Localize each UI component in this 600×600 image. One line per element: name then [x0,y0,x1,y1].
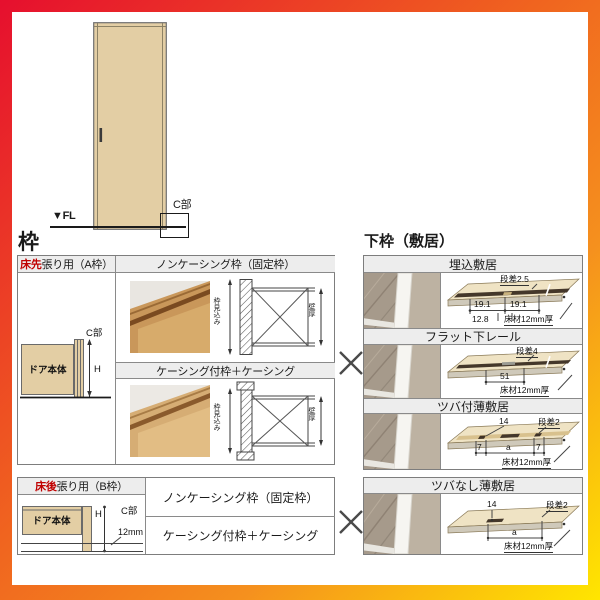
floor-level-label: ▼FL [52,210,75,222]
door-body-label: ドア本体 [28,364,67,376]
sill-row1-diagram: 段差2.5 19.1 19.1 12.8 床材12mm厚 [442,273,582,328]
table-b-header: 床後張り用（B枠） [18,478,146,495]
center-dim-label: a [506,443,511,452]
flooring-dim-label: 床材12mm厚 [500,386,549,397]
table-a-row2-cell: 枠見込み 壁厚 [116,379,335,464]
top-dim-label: 14 [499,417,508,426]
table-a-row1-title: ノンケーシング枠（固定枠） [156,256,295,272]
flooring-dim-label: 床材12mm厚 [502,458,551,469]
sill-row1-title: 埋込敷居 [449,256,497,273]
step-dim-label: 段差2 [538,418,560,429]
sill-photo [364,494,441,554]
casing-frame-photo [130,385,210,457]
floor-thickness-dim-label: 12mm [118,527,143,537]
table-a-header-red: 床先 [20,259,41,271]
frame-depth-label: 枠見込み [213,403,220,431]
sill-row3-header: ツバ付薄敷居 [364,398,582,414]
table-b-header-rest: 張り用（B枠） [57,481,128,493]
casing-frame-section-diagram [220,381,332,461]
sill-table-b: ツバなし薄敷居 [363,477,583,555]
table-b: 床後張り用（B枠） ドア本体 H C部 12mm ノンケーシング枠（固定枠） ケ [17,477,335,555]
h-dim-label: H [94,364,101,375]
sill-photo [364,345,441,398]
table-a-row1-header: ノンケーシング枠（固定枠） [116,256,335,273]
sill-row3-diagram: 14 段差2 7 a 7 床材12mm厚 [442,414,582,469]
sill-row4-title: ツバなし薄敷居 [431,477,515,494]
catalog-page: ▼FL C部 枠 下枠（敷居） 床先張り用（A枠） ドア本体 C部 H [0,0,600,600]
frame-depth-label: 枠見込み [213,297,220,325]
top-dim-label: 14 [487,500,496,509]
center-dim-label: a [512,528,517,537]
wall-thickness-label: 壁厚 [308,303,315,317]
step-dim-label: 段差2.5 [500,275,529,286]
flooring-dim-label: 床材12mm厚 [504,542,553,553]
lower-frame-heading: 下枠（敷居） [364,230,454,251]
step-dim-label: 段差2 [546,501,568,512]
sill-row2-header: フラット下レール [364,328,582,345]
table-b-row2: ケーシング付枠＋ケーシング [146,517,335,554]
h-dim-label: H [95,509,102,520]
table-b-header-red: 床後 [35,481,56,493]
sill-row4-content: 14 段差2 a 床材12mm厚 [364,494,582,554]
frame-heading: 枠 [18,226,39,256]
sill-row3-title: ツバ付薄敷居 [437,398,509,415]
sill-row4-diagram: 14 段差2 a 床材12mm厚 [442,494,582,554]
table-a-row1-cell: 枠見込み 壁厚 [116,273,335,362]
table-b-row1: ノンケーシング枠（固定枠） [146,478,335,517]
cross-pairing-icon-top [336,348,366,378]
wall-thickness-label: 壁厚 [308,407,315,421]
sill-row1-content: 段差2.5 19.1 19.1 12.8 床材12mm厚 [364,273,582,328]
table-b-row1-title: ノンケーシング枠（固定枠） [163,489,319,506]
sill-row2-diagram: 段差4 51 床材12mm厚 [442,345,582,398]
sill-photo [364,273,441,328]
sill-row3-content: 14 段差2 7 a 7 床材12mm厚 [364,414,582,469]
table-b-row2-title: ケーシング付枠＋ケーシング [163,527,319,544]
frame-b-section-diagram: ドア本体 H C部 12mm [18,495,146,554]
right-dim-label: 19.1 [510,300,527,309]
step-dim-label: 段差4 [516,347,538,358]
door-body-label: ドア本体 [32,515,71,527]
table-a-header-rest: 張り用（A枠） [42,259,113,271]
frame-a-section-diagram: ドア本体 C部 H [18,273,116,464]
sill-row1-header: 埋込敷居 [364,256,582,273]
door-handle-icon [100,128,103,142]
c-dim-label: C部 [121,505,137,517]
center-dim-label: 12.8 [472,315,489,324]
sill-photo [364,414,441,469]
table-a-diagram-cell: ドア本体 C部 H [18,273,116,464]
sill-row4-header: ツバなし薄敷居 [364,478,582,494]
c-dim-label: C部 [86,327,102,339]
table-a: 床先張り用（A枠） ドア本体 C部 H ノンケーシング枠（固定枠） [17,255,335,465]
center-dim-label: 51 [500,372,509,381]
table-a-header: 床先張り用（A枠） [18,256,116,273]
noncasing-frame-section-diagram [220,277,332,357]
table-a-row2-header: ケーシング付枠＋ケーシング [116,362,335,379]
flooring-dim-label: 床材12mm厚 [504,315,553,326]
sill-row2-title: フラット下レール [425,328,521,345]
cross-pairing-icon-bottom [336,507,366,537]
table-b-diagram-cell: ドア本体 H C部 12mm [18,495,146,554]
table-a-row2-title: ケーシング付枠＋ケーシング [156,363,295,379]
noncasing-frame-photo [130,281,210,353]
c-section-callout-box [160,213,189,238]
right-dim-label: 7 [536,443,541,452]
left-dim-label: 7 [477,443,482,452]
door-elevation-figure [93,22,167,230]
left-dim-label: 19.1 [474,300,491,309]
sill-table-a: 埋込敷居 [363,255,583,470]
c-section-label: C部 [173,196,191,212]
sill-row2-content: 段差4 51 床材12mm厚 [364,345,582,398]
